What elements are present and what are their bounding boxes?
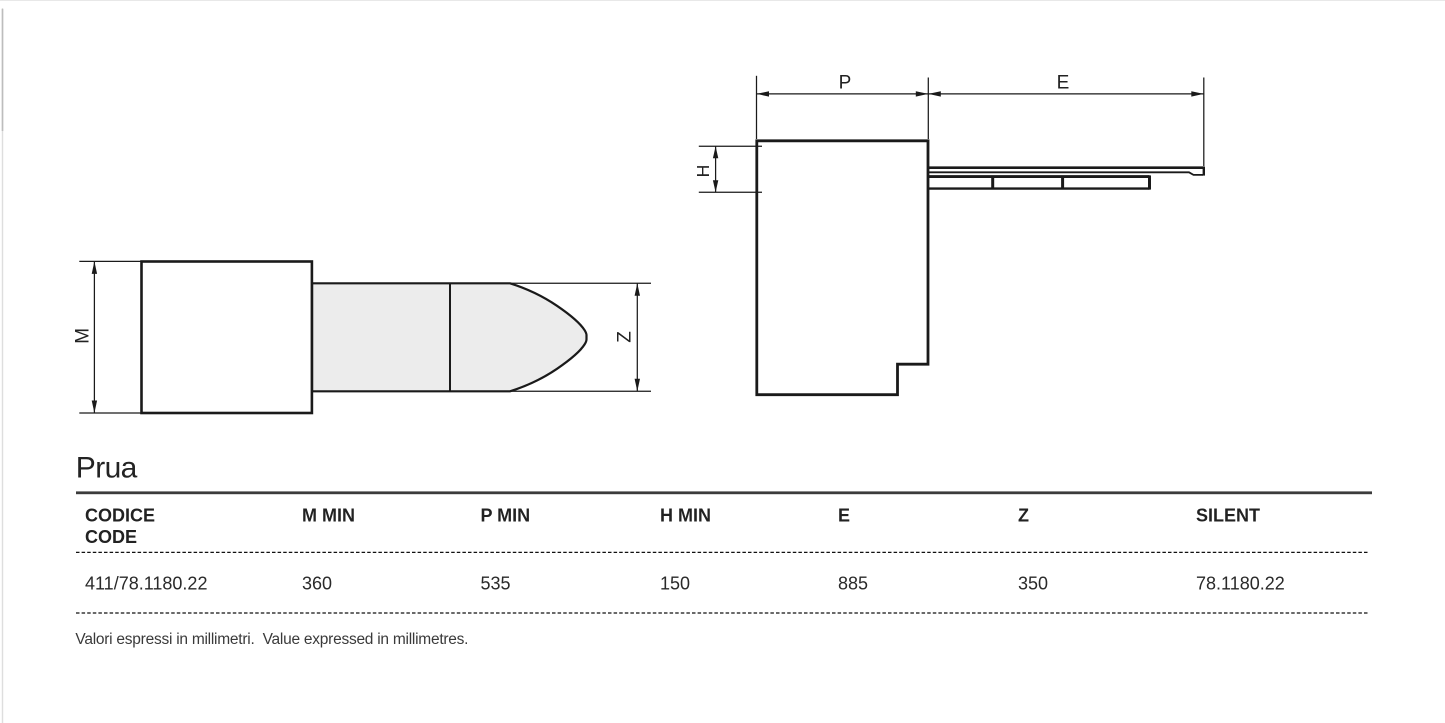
svg-text:Z: Z — [614, 331, 635, 343]
svg-text:411/78.1180.22: 411/78.1180.22 — [85, 574, 207, 594]
svg-text:H MIN: H MIN — [660, 505, 711, 525]
svg-text:360: 360 — [302, 574, 332, 594]
svg-text:H: H — [693, 165, 713, 178]
svg-text:P MIN: P MIN — [481, 505, 531, 525]
svg-text:P: P — [839, 72, 852, 93]
svg-text:M MIN: M MIN — [302, 505, 355, 525]
svg-text:CODICE: CODICE — [85, 505, 155, 525]
svg-text:Z: Z — [1018, 505, 1029, 525]
svg-text:Prua: Prua — [76, 451, 138, 484]
svg-text:E: E — [838, 505, 850, 525]
svg-text:150: 150 — [660, 574, 690, 594]
svg-text:CODE: CODE — [85, 527, 137, 547]
svg-text:350: 350 — [1018, 574, 1048, 594]
svg-text:M: M — [73, 328, 94, 344]
svg-text:Valori espressi in millimetri.: Valori espressi in millimetri. Value exp… — [75, 631, 468, 648]
svg-text:78.1180.22: 78.1180.22 — [1196, 574, 1285, 594]
svg-text:SILENT: SILENT — [1196, 505, 1260, 525]
svg-text:E: E — [1057, 72, 1070, 93]
svg-text:885: 885 — [838, 574, 868, 594]
svg-text:535: 535 — [481, 574, 511, 594]
